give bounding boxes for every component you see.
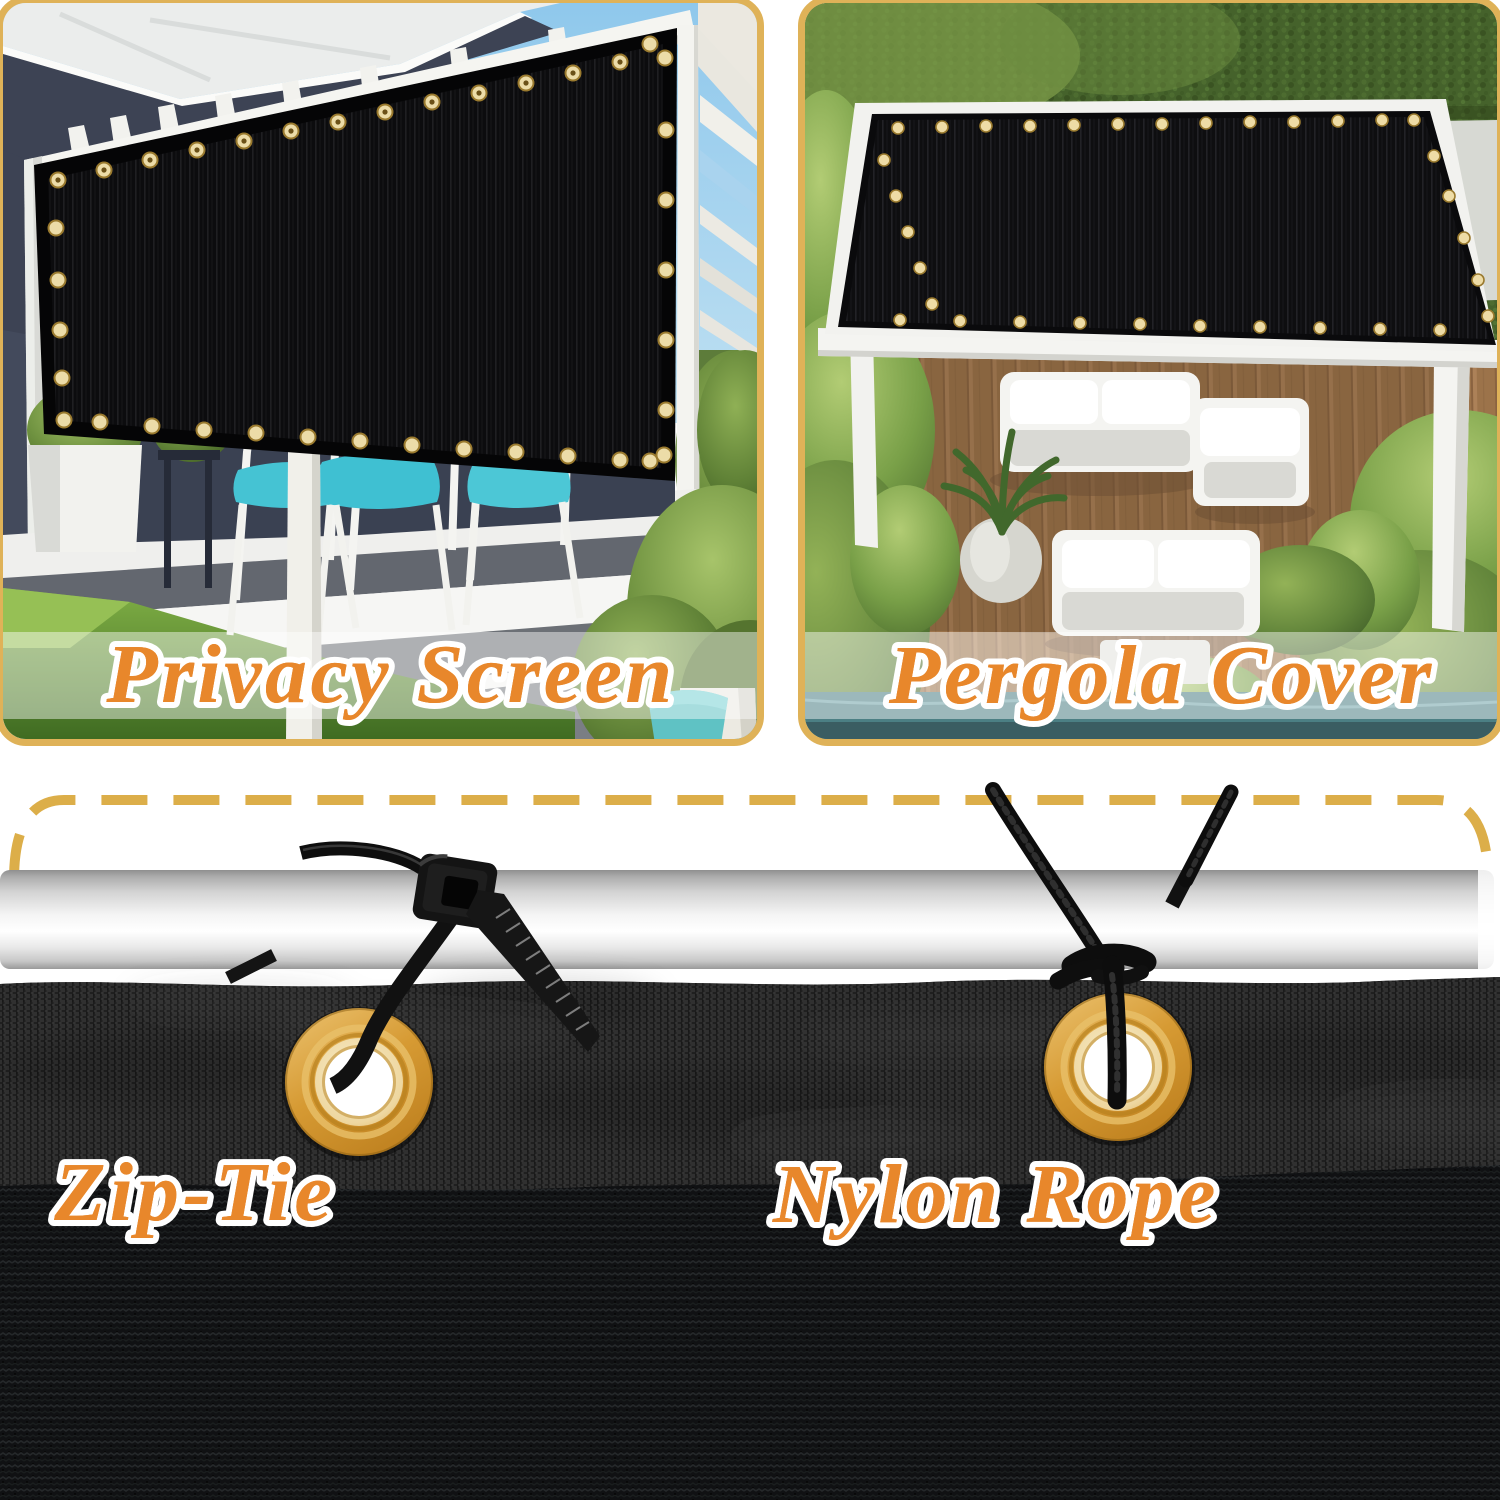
- svg-text:Pergola Cover: Pergola Cover: [888, 629, 1435, 722]
- svg-text:Privacy Screen: Privacy Screen: [105, 628, 675, 721]
- svg-text:Nylon Rope: Nylon Rope: [772, 1148, 1219, 1241]
- svg-text:Zip-Tie: Zip-Tie: [53, 1146, 335, 1239]
